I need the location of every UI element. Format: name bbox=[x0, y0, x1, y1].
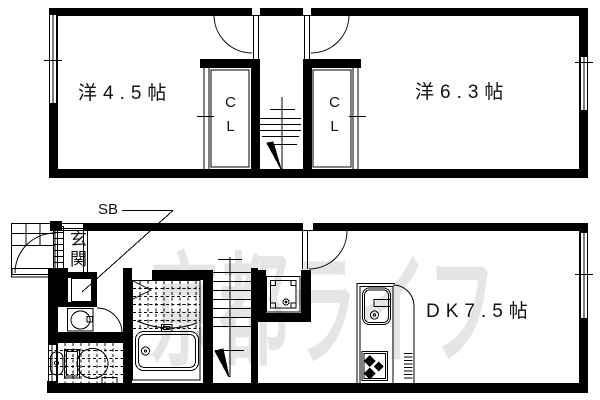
bathtub bbox=[136, 332, 199, 371]
closet-label-left: CL bbox=[222, 94, 239, 142]
room-label-dk: DK7.5帖 bbox=[426, 296, 534, 323]
floor-plan: 京都ライフ bbox=[0, 0, 600, 400]
entrance-label: 玄関 bbox=[64, 230, 89, 270]
shoe-box-label: SB bbox=[98, 201, 118, 218]
kitchen-unit bbox=[357, 283, 414, 384]
dk-door-arc bbox=[309, 231, 347, 269]
2f-hall-partitions bbox=[254, 15, 310, 59]
stairs-2f bbox=[260, 97, 301, 170]
door-arc-room-right bbox=[311, 15, 349, 53]
floor-plan-drawing bbox=[0, 0, 600, 400]
entrance-door-arc bbox=[15, 233, 55, 273]
2f-left-window bbox=[44, 15, 62, 103]
vanity-basin bbox=[68, 309, 94, 332]
stair-down-arrowhead bbox=[267, 142, 281, 169]
washing-machine-pan bbox=[258, 270, 311, 322]
gas-stove bbox=[362, 352, 388, 381]
shoe-box bbox=[48, 268, 97, 307]
bathroom bbox=[123, 268, 213, 385]
closet-label-right: CL bbox=[326, 94, 343, 142]
room-label-2f-right: 洋6.3帖 bbox=[415, 77, 509, 104]
counter-vent-hatch bbox=[404, 354, 413, 379]
door-arc-room-left bbox=[214, 15, 252, 53]
kitchen-sink bbox=[363, 288, 391, 325]
1f-right-window bbox=[575, 233, 593, 318]
kitchen-counter-corner bbox=[393, 285, 414, 306]
toilet-room bbox=[49, 343, 124, 385]
porch-tiles bbox=[12, 224, 56, 246]
toilet-step bbox=[102, 378, 117, 384]
washroom-door-arc bbox=[97, 308, 122, 333]
2f-right-window bbox=[575, 57, 593, 110]
stair-down-arrowhead bbox=[215, 349, 229, 377]
wall-washroom-toilet bbox=[57, 332, 123, 342]
2f-door-arcs bbox=[214, 15, 349, 53]
room-label-2f-left: 洋4.5帖 bbox=[78, 78, 172, 105]
stairs-1f bbox=[213, 257, 258, 385]
1f-topwall-window bbox=[62, 224, 83, 229]
dk-partition bbox=[303, 230, 308, 269]
bathroom-floor-tiles bbox=[133, 281, 200, 330]
